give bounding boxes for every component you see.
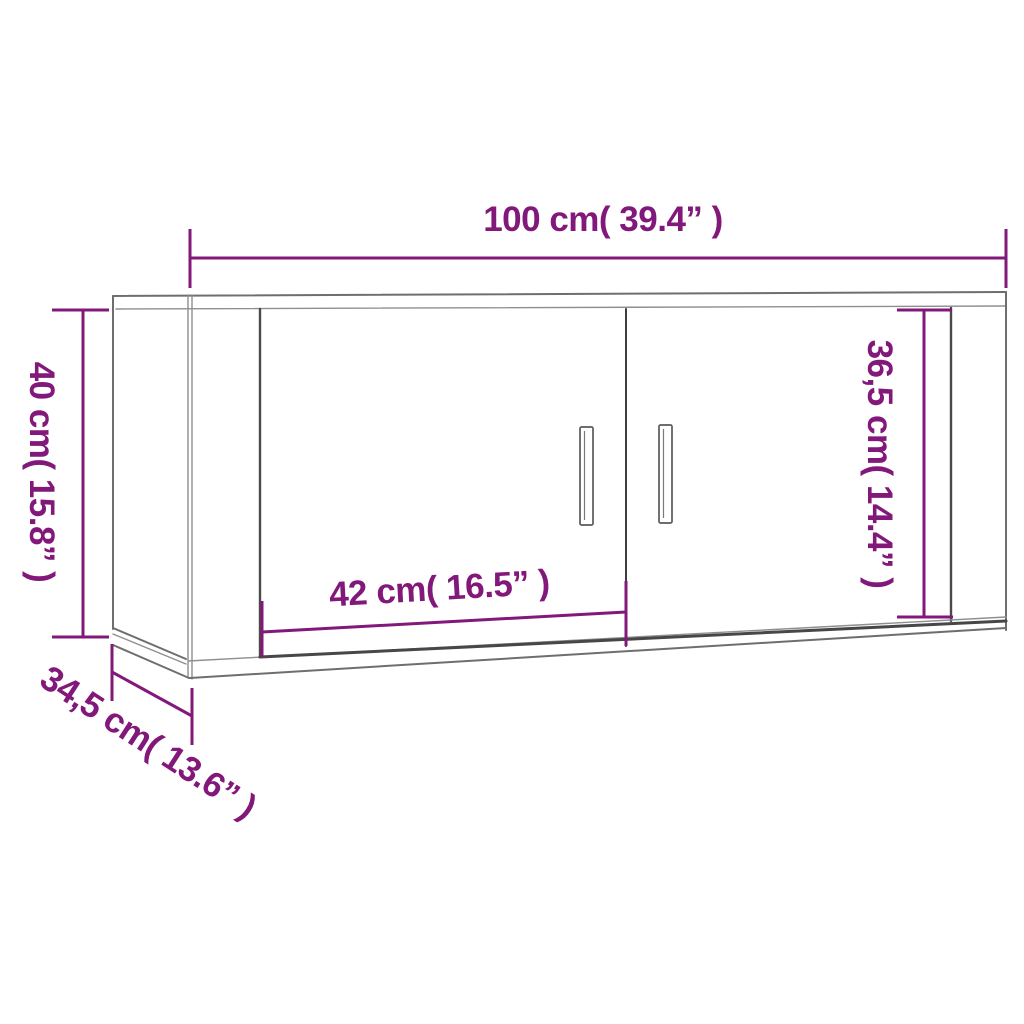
door-width-dimension-line: [262, 612, 626, 632]
height-dimension-label: 40 cm( 15.8” ): [22, 362, 61, 583]
product-dimension-diagram: 100 cm( 39.4” ) 40 cm( 15.8” ) 36,5 cm( …: [0, 0, 1024, 1024]
diagram-canvas: 100 cm( 39.4” ) 40 cm( 15.8” ) 36,5 cm( …: [0, 0, 1024, 1024]
width-dimension-label: 100 cm( 39.4” ): [483, 200, 723, 239]
right-door-handle: [659, 425, 672, 523]
dimension-width: 100 cm( 39.4” ): [190, 200, 1006, 288]
door-width-dimension-label: 42 cm( 16.5” ): [328, 563, 551, 615]
cabinet-top-outer-edge: [113, 292, 1006, 296]
depth-dimension-label: 34,5 cm( 13.6” ): [33, 658, 263, 826]
dimension-depth: 34,5 cm( 13.6” ): [33, 644, 263, 826]
left-door-handle: [580, 427, 593, 525]
cabinet-top-inner-edge: [116, 306, 1006, 309]
left-bottom-wedge-edge-a: [113, 628, 186, 659]
dimension-door-height: 36,5 cm( 14.4” ): [860, 310, 953, 617]
dimension-height: 40 cm( 15.8” ): [22, 310, 109, 637]
door-height-dimension-label: 36,5 cm( 14.4” ): [860, 340, 899, 589]
